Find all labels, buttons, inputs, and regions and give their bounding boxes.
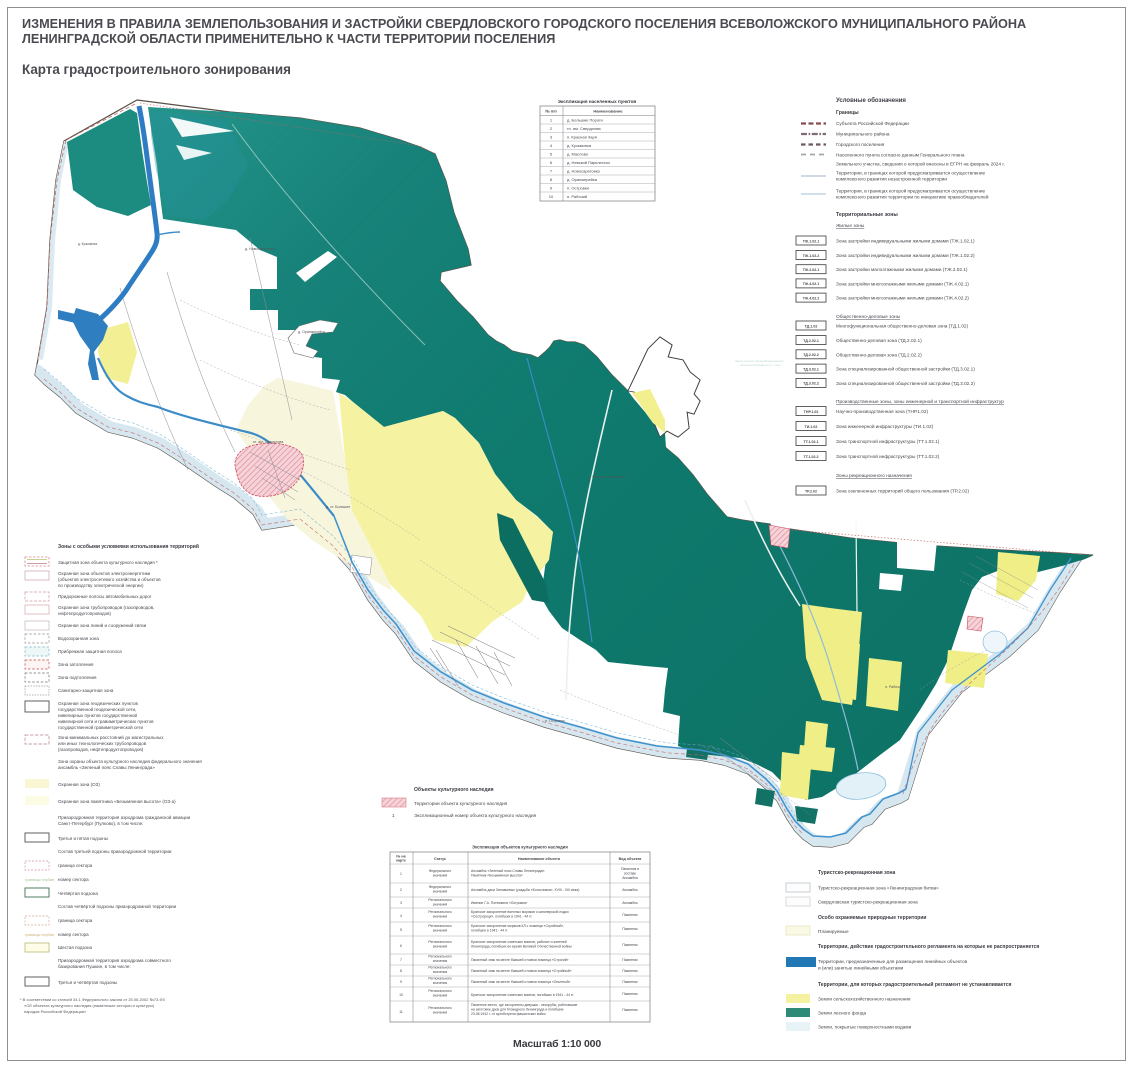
svg-text:д. Оранжерейка: д. Оранжерейка	[567, 177, 598, 182]
svg-text:составе: составе	[624, 872, 636, 876]
svg-text:Общественно-деловые зоны: Общественно-деловые зоны	[836, 314, 901, 320]
svg-text:Памятник: Памятник	[622, 992, 638, 996]
svg-text:Общественно-деловая зона (ТД.2: Общественно-деловая зона (ТД.2.02.1)	[836, 338, 922, 343]
svg-text:ТЖ.1.02.2: ТЖ.1.02.2	[803, 254, 820, 258]
svg-text:Памятник: Памятник	[622, 969, 638, 973]
svg-text:Регионального: Регионального	[428, 977, 451, 981]
svg-text:Памятный знак на месте бывшей: Памятный знак на месте бывшей стоянки эс…	[471, 980, 570, 984]
svg-text:Состав третьей подзоны приаэро: Состав третьей подзоны приаэродромной те…	[58, 848, 172, 854]
svg-text:Экспликация населенных пунктов: Экспликация населенных пунктов	[558, 99, 637, 104]
svg-text:граница сектора: граница сектора	[58, 863, 93, 868]
svg-text:* В соответствии со статьей 3: * В соответствии со статьей 34.1 Федерал…	[20, 997, 166, 1002]
svg-text:ТНР.1.02: ТНР.1.02	[804, 410, 819, 414]
svg-text:лесничества (Невское уч. л-во): лесничества (Невское уч. л-во)	[740, 363, 781, 367]
svg-text:Свердловская туристско-рекреац: Свердловская туристско-рекреационная зон…	[818, 900, 918, 905]
svg-text:гп. им. Свердлова: гп. им. Свердлова	[253, 440, 283, 444]
svg-text:Водоохранная зона: Водоохранная зона	[58, 636, 99, 641]
svg-text:на заготовке дров для блокадно: на заготовке дров для блокадного Ленингр…	[471, 1008, 564, 1012]
svg-text:Городского поселения: Городского поселения	[836, 142, 885, 147]
svg-text:ТЖ.2.02.1: ТЖ.2.02.1	[803, 268, 820, 272]
svg-text:7: 7	[400, 958, 402, 962]
svg-text:Зона озелененных территорий об: Зона озелененных территорий общего польз…	[836, 488, 969, 494]
svg-text:Третья и пятая подзоны: Третья и пятая подзоны	[58, 836, 108, 841]
svg-text:Охранная зона трубопроводов (г: Охранная зона трубопроводов (газопроводо…	[58, 605, 154, 610]
svg-text:граница сектора: граница сектора	[58, 918, 93, 923]
svg-text:Жилые зоны: Жилые зоны	[836, 223, 865, 229]
svg-text:п. Островки: п. Островки	[567, 186, 589, 191]
svg-text:Памятный знак на месте бывшей: Памятный знак на месте бывшей стоянки эс…	[471, 958, 569, 962]
svg-text:Наименование объекта: Наименование объекта	[518, 857, 561, 861]
svg-text:Придорожные полосы автомобильн: Придорожные полосы автомобильных дорог	[58, 594, 152, 599]
svg-text:Зона охраны объекта культурног: Зона охраны объекта культурного наследия…	[58, 759, 202, 764]
svg-text:9: 9	[400, 980, 402, 984]
svg-text:ТЖ.1.02.1: ТЖ.1.02.1	[803, 239, 820, 243]
svg-text:д. Невский парклесхоз: д. Невский парклесхоз	[588, 475, 626, 479]
svg-text:Ленинграда, погибших во время: Ленинграда, погибших во время Великой От…	[471, 945, 572, 949]
svg-text:Объекты культурного наследия: Объекты культурного наследия	[414, 786, 494, 793]
svg-text:Регионального: Регионального	[428, 898, 451, 902]
svg-text:Имение Г.А. Потемкина «Островк: Имение Г.А. Потемкина «Островки»	[471, 901, 528, 905]
svg-text:Охранная зона линий и сооружен: Охранная зона линий и сооружений связи	[58, 622, 147, 628]
svg-text:Муниципального района: Муниципального района	[836, 131, 890, 137]
svg-text:8: 8	[400, 969, 402, 973]
svg-text:ТЖ.4.02.2: ТЖ.4.02.2	[803, 296, 820, 300]
svg-text:5: 5	[400, 928, 402, 932]
svg-text:границы глубин: границы глубин	[25, 932, 54, 937]
svg-text:Производственные зоны, зоны ин: Производственные зоны, зоны инженерной и…	[836, 398, 1004, 405]
svg-text:Памятный знак на месте бывшей: Памятный знак на месте бывшей стоянки эс…	[471, 969, 572, 973]
svg-text:Туристско-рекреационная зона «: Туристско-рекреационная зона «Ленинградс…	[818, 886, 939, 891]
svg-text:Памятник в: Памятник в	[621, 867, 639, 871]
svg-text:д. Невский Парклесхоз: д. Невский Парклесхоз	[567, 160, 610, 165]
svg-text:Зона специализированной общест: Зона специализированной общественной зас…	[836, 366, 975, 372]
svg-text:11: 11	[399, 1010, 403, 1014]
svg-text:погибших в 1941 - 44 гг.: погибших в 1941 - 44 гг.	[471, 929, 508, 933]
svg-text:Территории объекта культурного: Территории объекта культурного наследия	[414, 801, 508, 806]
svg-text:«Сестрорецк», погибших в 1941: «Сестрорецк», погибших в 1941 - 44 гг.	[471, 915, 533, 919]
svg-text:Общественно-деловая зона (ТД.2: Общественно-деловая зона (ТД.2.02.2)	[836, 352, 922, 357]
svg-text:2: 2	[400, 888, 402, 892]
svg-text:Регионального: Регионального	[428, 910, 451, 914]
svg-text:ансамбль «Зеленый пояс Славы Л: ансамбль «Зеленый пояс Славы Ленинграда»	[58, 764, 155, 770]
svg-text:д. Оранжерейка: д. Оранжерейка	[298, 330, 325, 334]
svg-text:ТТ.1.02.1: ТТ.1.02.1	[804, 440, 819, 444]
svg-text:Регионального: Регионального	[428, 989, 451, 993]
svg-text:Зона минимальных расстояний до: Зона минимальных расстояний до магистрал…	[58, 734, 164, 740]
svg-text:Зона специализированной общест: Зона специализированной общественной зас…	[836, 380, 975, 386]
svg-text:23.08.1942 г. от артобстрела ф: 23.08.1942 г. от артобстрела фашистских …	[471, 1012, 546, 1016]
svg-text:значения: значения	[433, 929, 448, 933]
svg-text:(газопроводов, нефтепродуктопр: (газопроводов, нефтепродуктопроводов)	[58, 747, 144, 752]
svg-text:6: 6	[400, 944, 402, 948]
svg-text:карте: карте	[396, 859, 406, 863]
svg-text:Ансамбль дачи Зиновьевых (усад: Ансамбль дачи Зиновьевых (усадьба «Богос…	[471, 888, 579, 892]
svg-text:ТД.3.02.1: ТД.3.02.1	[803, 367, 819, 371]
svg-text:значения: значения	[433, 874, 448, 878]
svg-text:Ансамбля: Ансамбля	[622, 876, 638, 880]
svg-text:Ансамбль: Ансамбль	[622, 888, 638, 892]
svg-text:Шестая подзона: Шестая подзона	[58, 945, 93, 950]
svg-text:Зоны рекреационного назначения: Зоны рекреационного назначения	[836, 473, 912, 479]
svg-text:Регионального: Регионального	[428, 1006, 451, 1010]
svg-text:государственной геодезической: государственной геодезической сети,	[58, 706, 136, 712]
svg-text:Санитарно-защитная зона: Санитарно-защитная зона	[58, 688, 114, 693]
svg-text:Наименование: Наименование	[593, 109, 623, 114]
svg-text:д. Большие Пороги: д. Большие Пороги	[567, 118, 603, 123]
svg-text:д. ст. Большие: д. ст. Большие	[326, 505, 350, 509]
svg-text:Вид объекта: Вид объекта	[619, 857, 643, 861]
svg-text:Территории, действие градостро: Территории, действие градостроительного …	[818, 943, 1039, 950]
svg-text:д. Маслово: д. Маслово	[567, 152, 589, 157]
svg-text:ТР.2.02: ТР.2.02	[805, 489, 817, 493]
svg-text:комплексного развития территор: комплексного развития территории по иниц…	[836, 194, 989, 200]
svg-text:Защитная зона объекта культурн: Защитная зона объекта культурного наслед…	[58, 560, 158, 565]
svg-text:Охранная зона объектов электро: Охранная зона объектов электроэнергетики	[58, 571, 151, 576]
svg-text:д. Новосаратовка: д. Новосаратовка	[567, 169, 601, 174]
svg-text:«Об объектах культурного насле: «Об объектах культурного наследия (памят…	[24, 1003, 155, 1008]
svg-text:Зона подтопления: Зона подтопления	[58, 675, 97, 680]
svg-text:Памятник «Безымянная высота»: Памятник «Безымянная высота»	[471, 874, 523, 878]
svg-text:Третья и четвёртая подзоны: Третья и четвёртая подзоны	[58, 980, 117, 985]
svg-text:Братское захоронение моряков К: Братское захоронение моряков КЛ с эсминц…	[471, 924, 564, 928]
svg-text:Земли лесного фонда: Земли лесного фонда	[818, 1011, 867, 1016]
svg-text:п. Красная Заря: п. Красная Заря	[567, 135, 597, 140]
svg-text:Зона застройки малоэтажными жи: Зона застройки малоэтажными жилыми домам…	[836, 266, 968, 272]
svg-text:10: 10	[399, 993, 403, 997]
svg-text:1: 1	[400, 872, 402, 876]
svg-text:1: 1	[392, 813, 395, 818]
svg-text:ТТ.1.02.2: ТТ.1.02.2	[804, 455, 819, 459]
svg-text:Зона инженерной инфраструктуры: Зона инженерной инфраструктуры (ТИ.1.02)	[836, 423, 934, 429]
svg-text:ТД.3.02.2: ТД.3.02.2	[803, 382, 819, 386]
svg-text:Охранная зона памятника «Безым: Охранная зона памятника «Безымянная высо…	[58, 799, 176, 804]
svg-text:Санкт-Петербург (Пулково), в т: Санкт-Петербург (Пулково), в том числе:	[58, 821, 143, 826]
svg-text:п. Островки: п. Островки	[545, 719, 565, 723]
svg-text:Памятник: Памятник	[622, 980, 638, 984]
svg-text:Зона застройки индивидуальными: Зона застройки индивидуальными жилыми до…	[836, 238, 975, 244]
svg-text:Четвёртая подзона: Четвёртая подзона	[58, 891, 98, 896]
svg-text:Федерального: Федерального	[429, 885, 452, 889]
svg-text:д. Новосаратовка: д. Новосаратовка	[245, 247, 274, 251]
svg-text:Братское захоронение военных м: Братское захоронение военных моряков с к…	[471, 910, 569, 914]
svg-text:значения: значения	[433, 994, 448, 998]
svg-text:Состав четвёртой подзоны приаэ: Состав четвёртой подзоны приаэродромной …	[58, 903, 177, 909]
svg-text:Приаэродромная территория аэро: Приаэродромная территория аэродрома граж…	[58, 814, 191, 820]
svg-text:Территории, для которых градос: Территории, для которых градостроительны…	[818, 981, 1012, 988]
svg-text:Особо охраняемые природные тер: Особо охраняемые природные территории	[818, 914, 926, 921]
svg-text:нивелирных пунктов государстве: нивелирных пунктов государственной	[58, 712, 138, 718]
svg-text:Прибрежная защитная полоса: Прибрежная защитная полоса	[58, 649, 122, 654]
svg-text:нивелирной сети и гравиметриче: нивелирной сети и гравиметрических пункт…	[58, 718, 154, 724]
svg-text:Памятник: Памятник	[622, 943, 638, 947]
svg-text:значения: значения	[433, 970, 448, 974]
svg-text:Регионального: Регионального	[428, 955, 451, 959]
svg-text:значения: значения	[433, 903, 448, 907]
svg-text:Зона транспортной инфраструкту: Зона транспортной инфраструктуры (ТТ.1.0…	[836, 438, 940, 444]
svg-text:Зоны с особыми условиями испол: Зоны с особыми условиями использования т…	[58, 543, 199, 550]
svg-text:Федерального: Федерального	[429, 869, 452, 873]
svg-text:Ансамбль «Зеленый пояс Славы Л: Ансамбль «Зеленый пояс Славы Ленинграда»…	[471, 869, 545, 873]
svg-text:Памятник: Памятник	[622, 1008, 638, 1012]
svg-text:по производству электрической: по производству электрической энергии)	[58, 582, 144, 588]
svg-text:Зона транспортной инфраструкту: Зона транспортной инфраструктуры (ТТ.1.0…	[836, 453, 940, 459]
svg-text:Многофункциональная общественн: Многофункциональная общественно-деловая …	[836, 324, 969, 329]
svg-text:гп. им. Свердлова: гп. им. Свердлова	[567, 126, 601, 131]
svg-text:значения: значения	[433, 981, 448, 985]
svg-text:№ п/п: № п/п	[545, 109, 557, 114]
svg-text:ТИ.1.02: ТИ.1.02	[805, 425, 818, 429]
svg-text:ТЖ.4.02.1: ТЖ.4.02.1	[803, 282, 820, 286]
svg-text:и (или) занятые линейными объе: и (или) занятые линейными объектами	[818, 965, 904, 971]
svg-text:Планируемые: Планируемые	[818, 929, 849, 934]
svg-text:ТД.1.02: ТД.1.02	[805, 324, 818, 328]
svg-text:значения: значения	[433, 1011, 448, 1015]
svg-text:Памятное место, где захоронены: Памятное место, где захоронены девушки -…	[471, 1003, 578, 1007]
svg-text:Экспликационный номер объекта: Экспликационный номер объекта культурног…	[414, 812, 537, 818]
svg-text:3: 3	[400, 901, 402, 905]
svg-text:ТД.2.02.2: ТД.2.02.2	[803, 353, 819, 357]
svg-text:Зона застройки многоэтажными ж: Зона застройки многоэтажными жилыми дома…	[836, 280, 969, 286]
svg-text:значения: значения	[433, 959, 448, 963]
svg-text:или иных технологических трубо: или иных технологических трубопроводов	[58, 741, 147, 746]
svg-text:номер сектора: номер сектора	[58, 932, 89, 937]
svg-text:номер сектора: номер сектора	[58, 877, 89, 882]
svg-text:Памятник: Памятник	[622, 927, 638, 931]
svg-text:значения: значения	[433, 890, 448, 894]
svg-text:Туристско-рекреационная зона: Туристско-рекреационная зона	[818, 870, 896, 876]
svg-text:Субъекта Российской Федерации: Субъекта Российской Федерации	[836, 120, 909, 126]
svg-text:нефтепродуктопроводов): нефтепродуктопроводов)	[58, 611, 112, 616]
svg-text:Приаэродромная территория аэро: Приаэродромная территория аэродрома совм…	[58, 958, 171, 963]
svg-text:Братское захоронение советских: Братское захоронение советских воинов, п…	[471, 993, 574, 997]
svg-text:Зона застройки многоэтажными ж: Зона застройки многоэтажными жилыми дома…	[836, 295, 969, 301]
svg-text:народов Российской Федерации»: народов Российской Федерации»	[24, 1009, 87, 1014]
svg-text:Ансамбль: Ансамбль	[622, 901, 638, 905]
svg-text:Территории, в границах которой: Территории, в границах которой предусмат…	[836, 188, 986, 194]
svg-text:Братское захоронение советских: Братское захоронение советских воинов, р…	[471, 940, 567, 944]
svg-text:4: 4	[400, 914, 402, 918]
svg-text:границы глубин: границы глубин	[25, 877, 54, 882]
svg-text:Территориальные зоны: Территориальные зоны	[836, 212, 898, 218]
svg-text:Территории, в границах которой: Территории, в границах которой предусмат…	[836, 170, 986, 176]
svg-text:Земли сельскохозяйственного на: Земли сельскохозяйственного назначения	[818, 996, 911, 1002]
svg-text:п. Рабочий: п. Рабочий	[885, 685, 903, 689]
svg-text:Регионального: Регионального	[428, 940, 451, 944]
svg-text:д. Кузьминка: д. Кузьминка	[567, 143, 592, 148]
svg-text:(объектов электросетевого хозя: (объектов электросетевого хозяйства и об…	[58, 576, 161, 582]
svg-text:Регионального: Регионального	[428, 966, 451, 970]
svg-text:значения: значения	[433, 915, 448, 919]
svg-text:Экспликация объектов культурно: Экспликация объектов культурного наследи…	[472, 845, 568, 850]
svg-text:базирования Пушкин, в том числ: базирования Пушкин, в том числе:	[58, 964, 131, 969]
svg-text:д. Кузьминка: д. Кузьминка	[78, 242, 97, 246]
svg-text:Охранная зона геодезических пу: Охранная зона геодезических пунктов	[58, 701, 138, 706]
svg-text:Охранная зона (ОЗ): Охранная зона (ОЗ)	[58, 782, 100, 787]
svg-text:п. Рабочий: п. Рабочий	[567, 194, 587, 199]
svg-text:значения: значения	[433, 945, 448, 949]
svg-text:Регионального: Регионального	[428, 924, 451, 928]
svg-text:Земли, покрытые поверхностными: Земли, покрытые поверхностными водами	[818, 1025, 912, 1030]
svg-text:Зона застройки индивидуальными: Зона застройки индивидуальными жилыми до…	[836, 252, 975, 258]
svg-text:ТД.2.02.1: ТД.2.02.1	[803, 339, 819, 343]
svg-text:Условные обозначения: Условные обозначения	[836, 97, 906, 104]
svg-text:Памятник: Памятник	[622, 913, 638, 917]
svg-text:Памятник: Памятник	[622, 958, 638, 962]
svg-text:государственной гравиметрическ: государственной гравиметрической сети	[58, 724, 144, 730]
svg-text:Зона затопления: Зона затопления	[58, 662, 94, 667]
svg-text:10: 10	[549, 194, 554, 199]
svg-text:Земельного участка, сведения о: Земельного участка, сведения о которой в…	[836, 161, 1005, 167]
svg-text:Границы: Границы	[836, 110, 859, 116]
svg-text:комплексного развития незастро: комплексного развития незастроенной терр…	[836, 176, 947, 182]
svg-text:Статус: Статус	[434, 857, 446, 861]
svg-text:Территории, предназначенные дл: Территории, предназначенные для размещен…	[818, 958, 968, 964]
svg-text:Населенного пункта согласно да: Населенного пункта согласно данным Генер…	[836, 153, 965, 158]
svg-text:Научно-производственная зона (: Научно-производственная зона (ТНР.1.02)	[836, 409, 929, 414]
